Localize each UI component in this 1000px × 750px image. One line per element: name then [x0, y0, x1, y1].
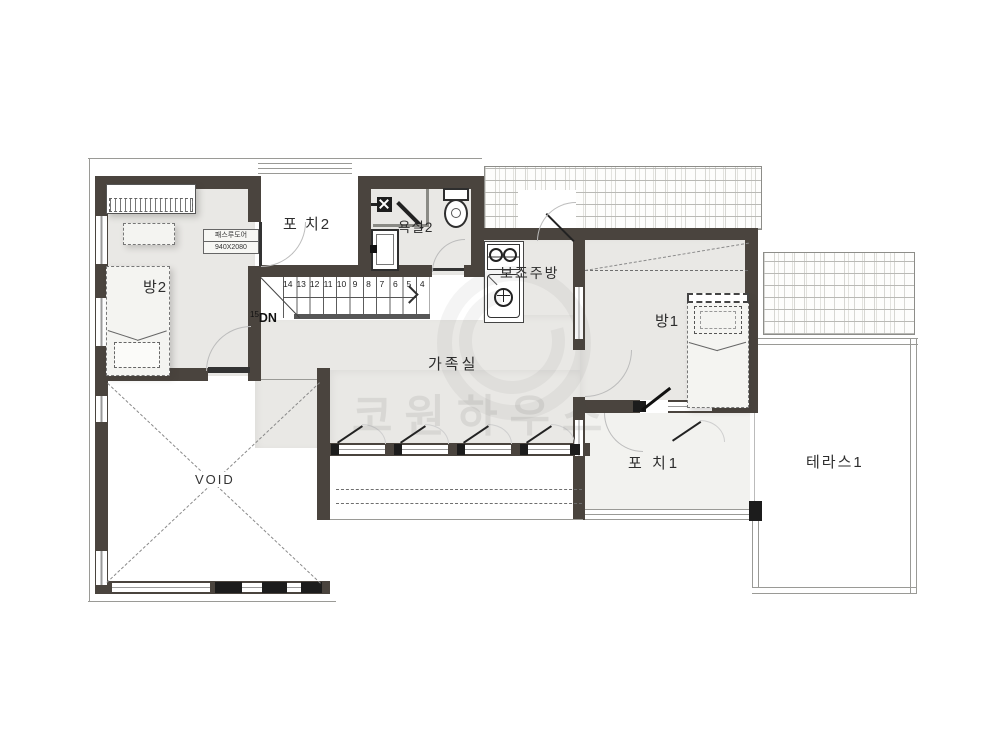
terrace-right-2	[916, 338, 917, 593]
eave-line-left	[89, 158, 90, 602]
window-void-left-2	[96, 551, 107, 585]
label-bang2: 방2	[143, 276, 167, 297]
canopy-dash-1	[336, 489, 582, 490]
window-family-1	[333, 445, 385, 454]
stair-center-line	[283, 297, 416, 298]
desk2-bang2	[123, 223, 175, 245]
canopy-dash-2	[336, 503, 582, 504]
stair-dn-text: DN	[259, 311, 277, 325]
label-porch1: 포 치1	[628, 452, 680, 473]
ceiling-slope-line-h	[585, 270, 748, 271]
label-terrace1: 테라스1	[806, 451, 864, 472]
window-frame-cap-3	[457, 444, 465, 455]
bed-bang1-headboard	[687, 293, 749, 303]
terrace-left-1	[752, 521, 753, 587]
bed-bang1-pillow-inner	[700, 311, 736, 329]
void-overlook-edge	[261, 379, 317, 380]
void-window-cap-2	[262, 582, 287, 593]
eave-line-bottom	[88, 601, 336, 602]
stair-bottom-edge	[294, 314, 430, 319]
window-bang2-left-1	[96, 216, 107, 264]
window-void-south-3	[287, 583, 301, 592]
wall-stair-top-a	[261, 265, 432, 277]
window-family-2	[396, 445, 448, 454]
label-void: VOID	[191, 472, 239, 487]
window-frame-cap-1	[331, 444, 339, 455]
door-spec-tag: 패스루도어 940X2080	[203, 229, 259, 253]
label-bath2: 욕실2	[398, 216, 433, 236]
terrace-right-1	[910, 338, 911, 593]
window-void-south-2	[242, 583, 262, 592]
wall-bath-left	[358, 176, 371, 277]
terrace-corner-post	[749, 501, 762, 521]
void-window-cap-3	[301, 582, 322, 593]
door-spec-size: 940X2080	[203, 241, 259, 254]
porch1-terrace-divider	[754, 413, 755, 501]
terrace-top-1	[758, 338, 918, 339]
wall-bath-right	[471, 176, 484, 277]
terrace-left-2	[758, 521, 759, 587]
window-family-3	[459, 445, 511, 454]
label-porch2: 포 치2	[283, 213, 331, 234]
desk-bang2-hatch	[109, 198, 193, 212]
roof-hatch-right	[763, 252, 915, 335]
watermark-brand: 코원하우스	[352, 380, 614, 444]
porch2-rail-2	[258, 168, 352, 169]
void-window-cap-1	[215, 582, 242, 593]
bed-bang2-pillow	[114, 342, 160, 368]
eave-line-top	[88, 158, 482, 159]
window-frame-cap-2	[394, 444, 402, 455]
washbasin-inner	[376, 234, 394, 265]
label-family: 가족실	[428, 353, 478, 374]
shower-head-icon	[377, 197, 392, 212]
porch1-rail-1	[585, 509, 752, 510]
washbasin-faucet	[370, 245, 377, 253]
stair-landing-label: 15DN	[250, 310, 277, 325]
label-bang1: 방1	[655, 310, 679, 331]
porch2-rail-3	[258, 173, 352, 174]
stair-landing-step: 15	[250, 310, 259, 319]
terrace-top-2	[758, 344, 918, 345]
window-frame-cap-4	[520, 444, 528, 455]
porch2-rail-1	[258, 163, 352, 164]
stove-burner-2	[503, 248, 517, 262]
stove-burner-1	[489, 248, 503, 262]
terrace-bottom-1	[752, 587, 917, 588]
window-void-left-1	[96, 396, 107, 422]
window-void-south-1	[112, 583, 210, 592]
canopy-bottom-line	[330, 519, 583, 520]
wall-roof-bottom	[471, 228, 758, 240]
window-frame-cap-5	[570, 444, 580, 455]
label-auxkitchen: 보조주방	[500, 263, 560, 283]
porch1-rail-2	[585, 514, 752, 515]
porch1-rail-3	[585, 519, 752, 520]
toilet-drain	[451, 208, 461, 218]
terrace-bottom-2	[752, 593, 917, 594]
floor-plan: 1413121110987654 15DN	[0, 0, 1000, 750]
wall-bang2-porch-divider-a	[248, 176, 261, 222]
